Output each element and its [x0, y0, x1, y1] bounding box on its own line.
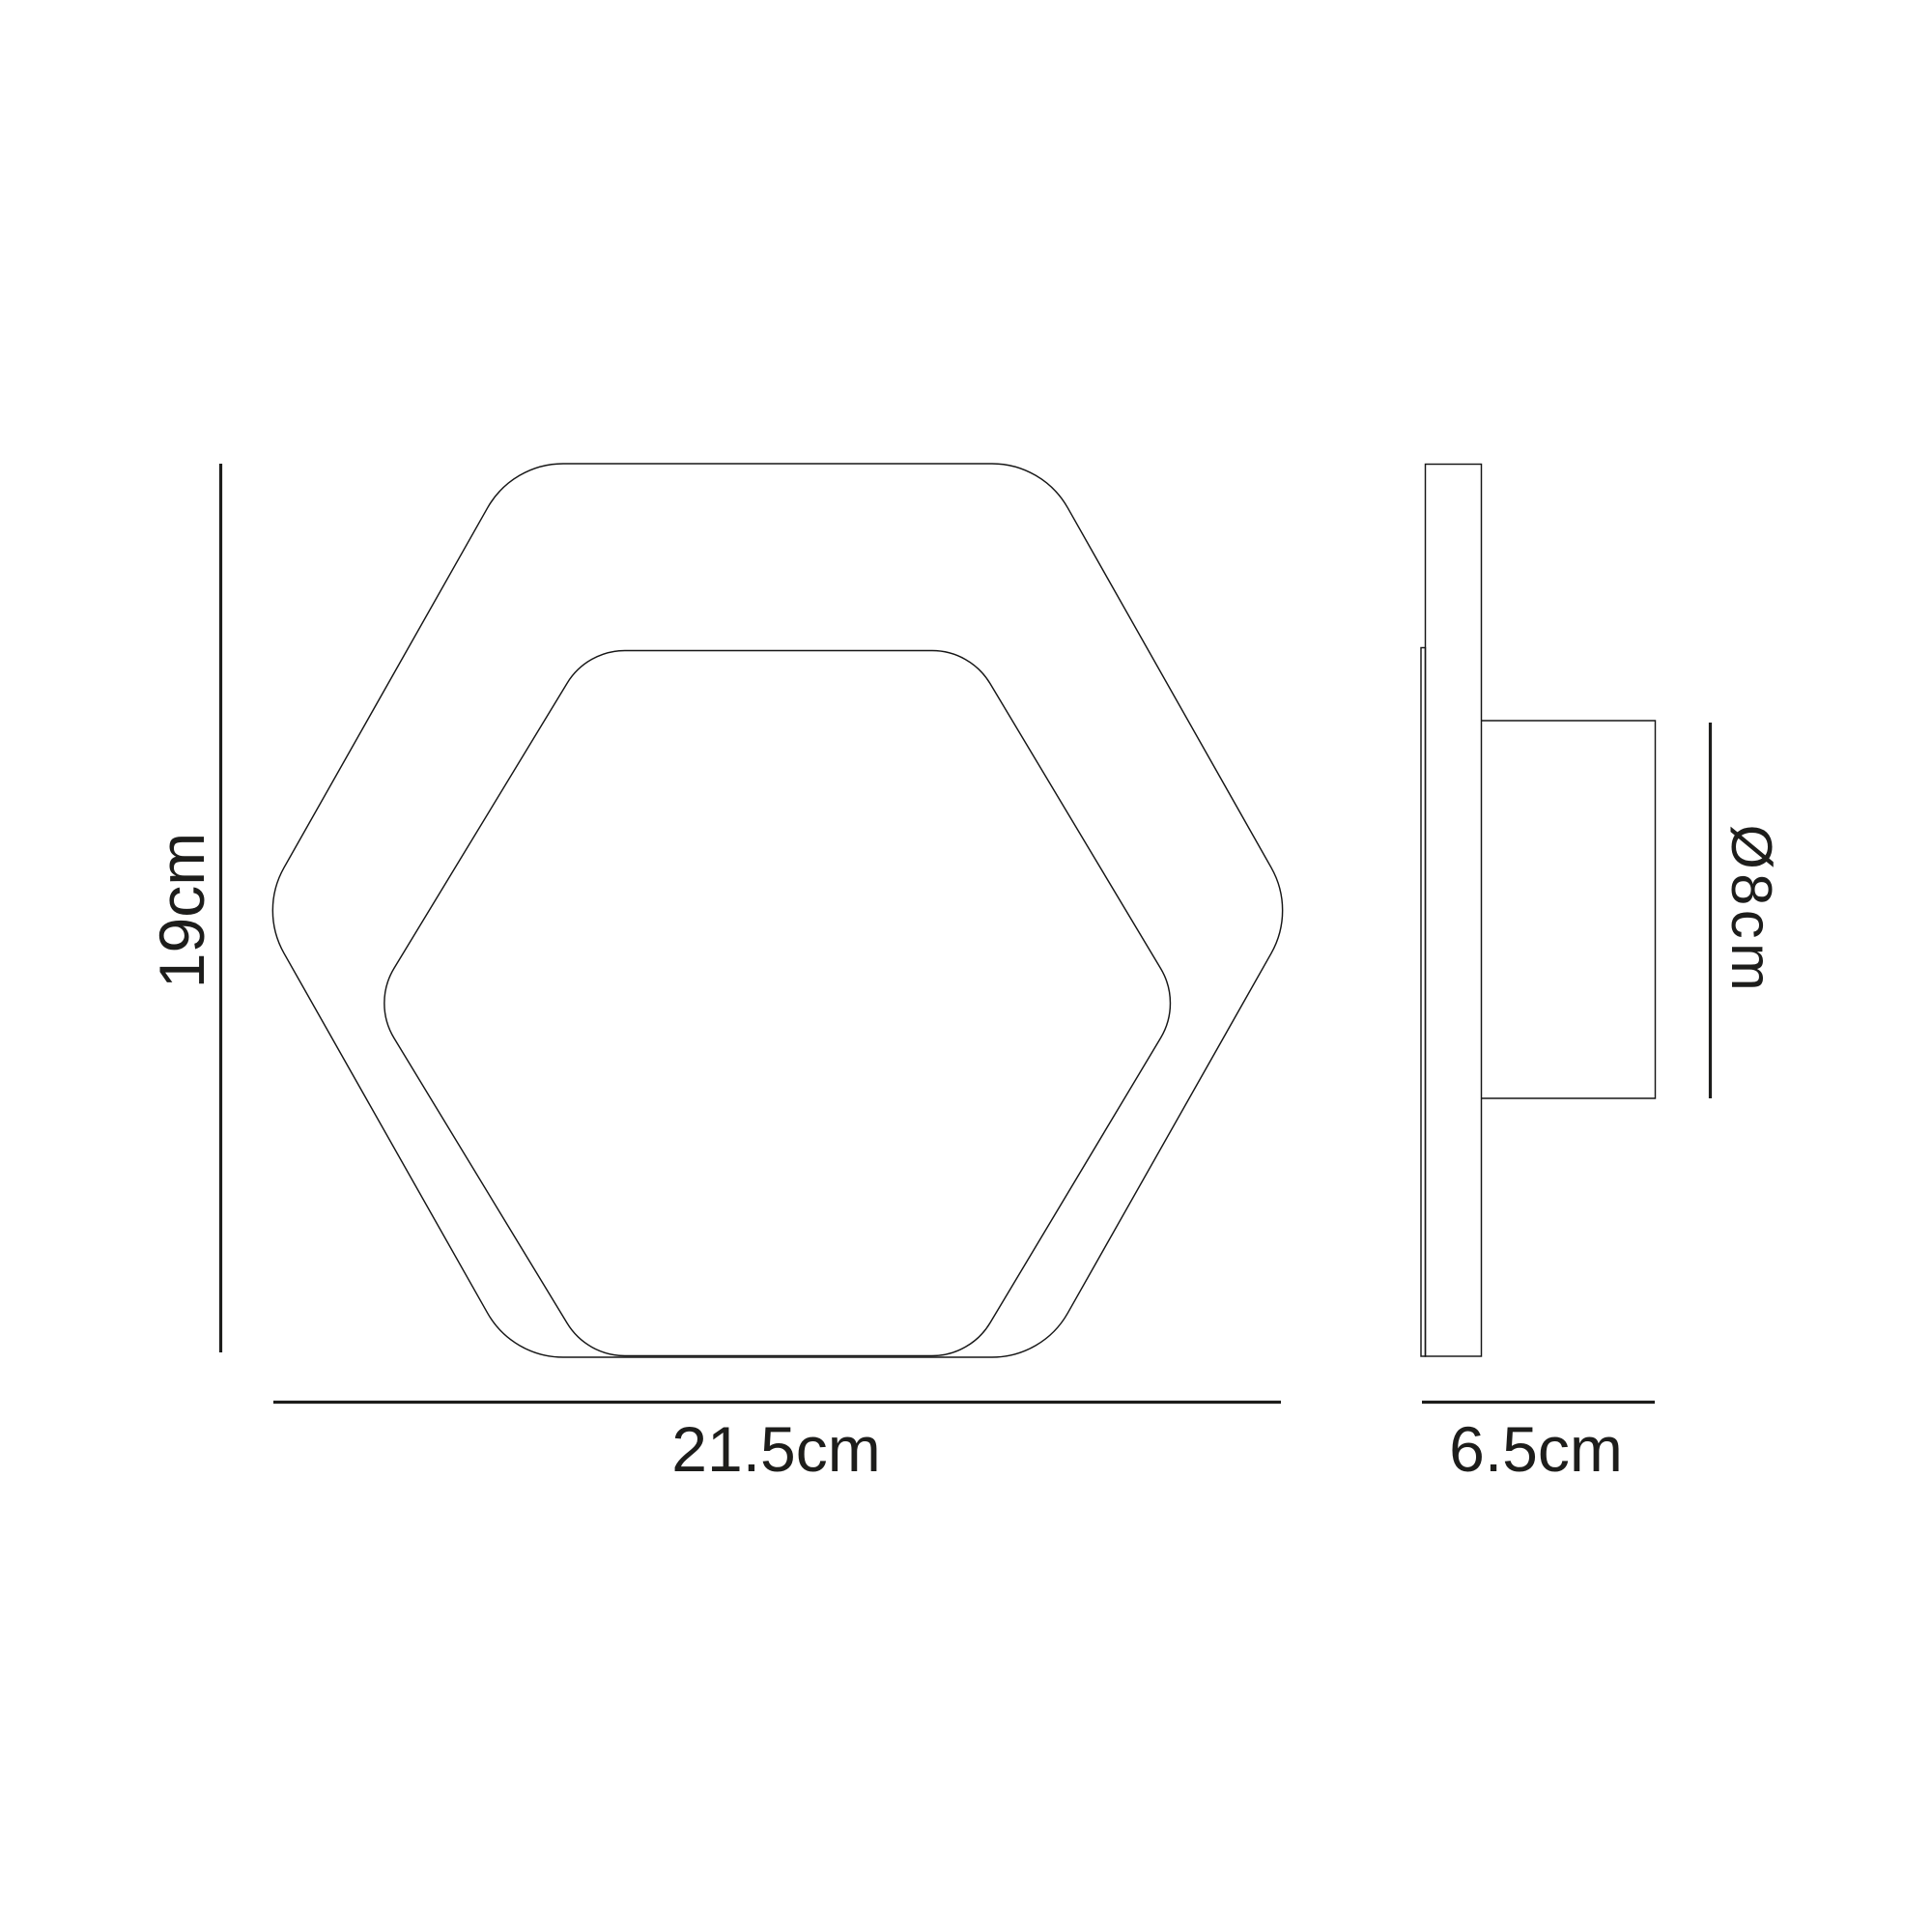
svg-text:21.5cm: 21.5cm — [671, 1413, 880, 1485]
svg-text:19cm: 19cm — [146, 833, 217, 988]
svg-text:6.5cm: 6.5cm — [1449, 1413, 1623, 1485]
svg-text:Ø8cm: Ø8cm — [1719, 824, 1784, 995]
